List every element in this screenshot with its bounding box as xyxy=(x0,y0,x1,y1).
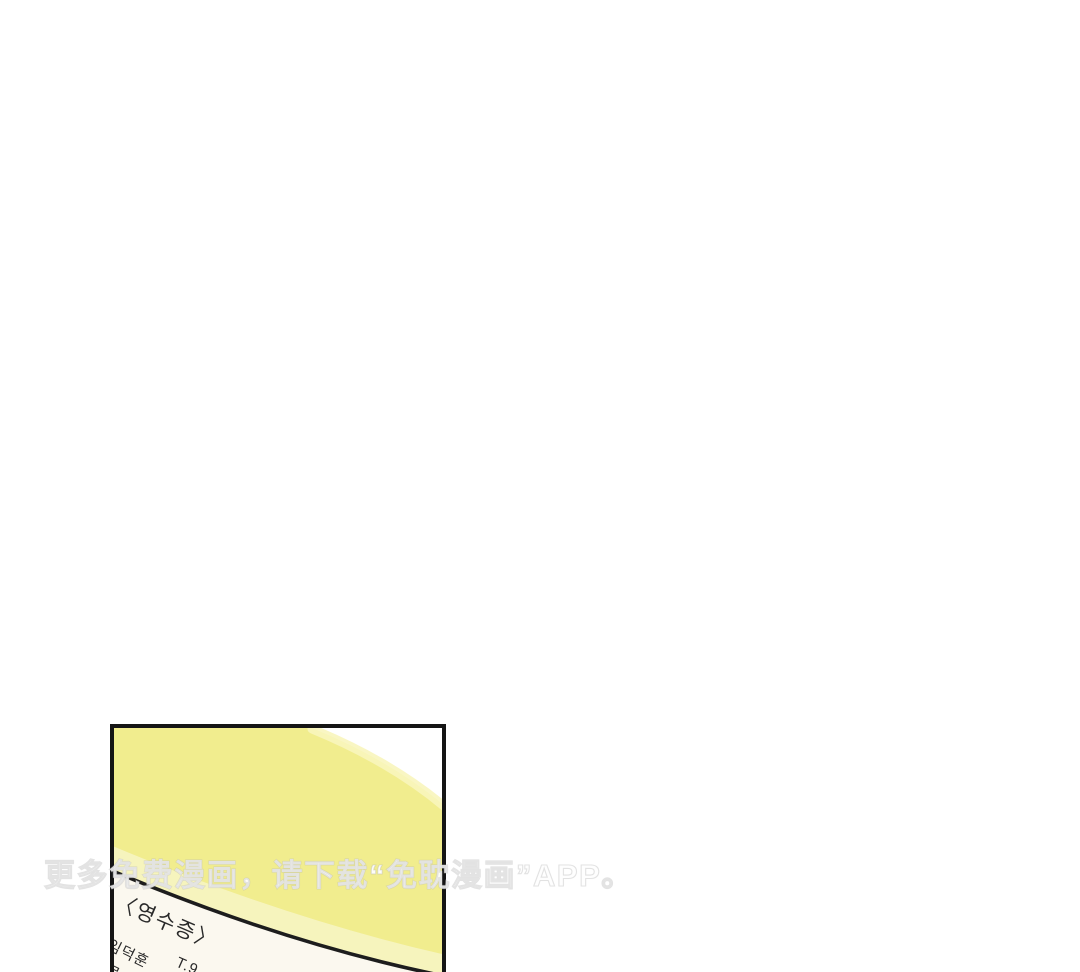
comic-panel: 〈영수증〉 임덕훈 로 1 T.9 xyxy=(110,724,446,972)
comic-page: 〈영수증〉 임덕훈 로 1 T.9 更多免费漫画，请下载“免耽漫画”APP。 xyxy=(0,0,1080,972)
